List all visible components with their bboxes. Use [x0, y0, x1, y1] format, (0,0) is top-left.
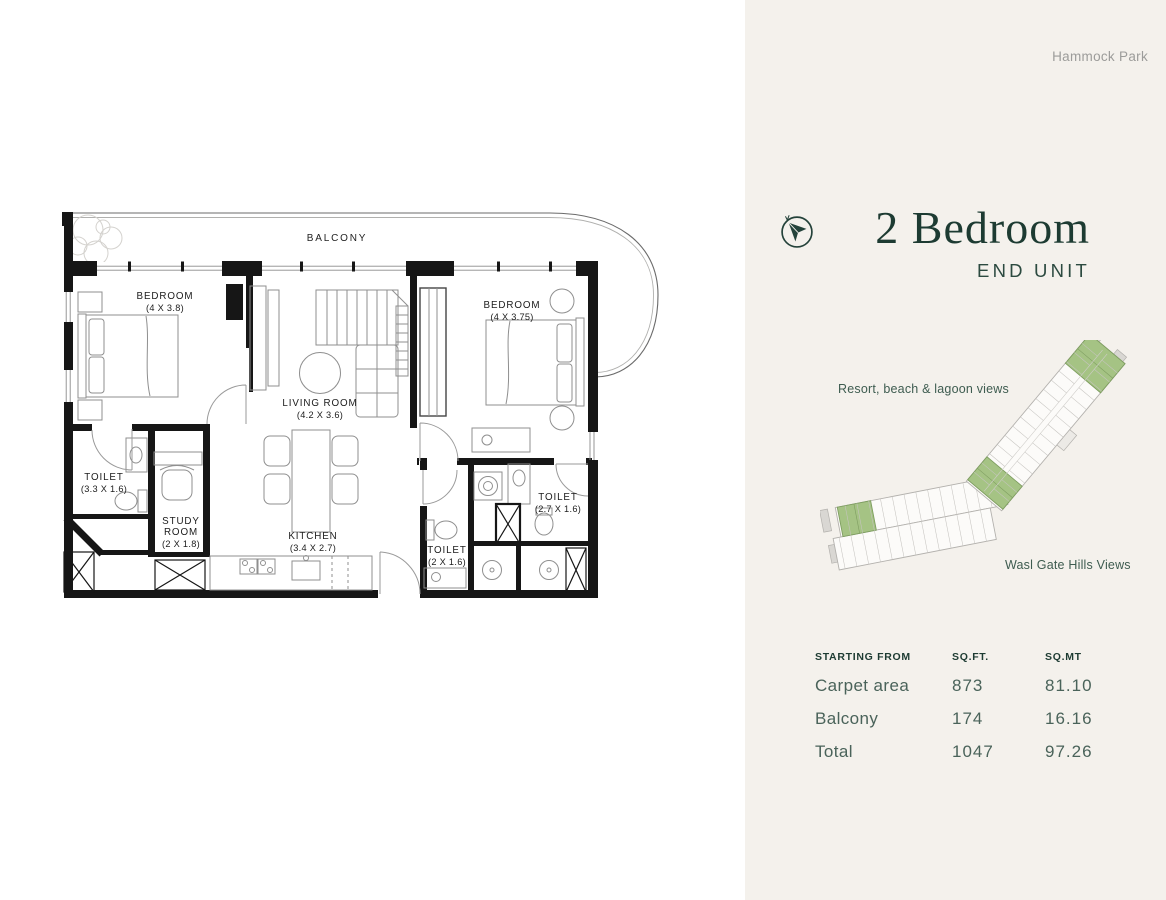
brand-text: Hammock Park: [1052, 49, 1148, 64]
svg-text:ROOM: ROOM: [164, 527, 198, 538]
svg-text:(4 X 3.75): (4 X 3.75): [490, 312, 533, 322]
svg-text:(2 X 1.6): (2 X 1.6): [428, 557, 466, 567]
room-label-toilet-3: TOILET: [427, 545, 467, 556]
row-sqft: 873: [952, 676, 1045, 696]
table-row: Balcony 174 16.16: [815, 709, 1115, 729]
room-label-toilet-2: TOILET: [538, 492, 578, 503]
svg-text:(2 X 1.8): (2 X 1.8): [162, 539, 200, 549]
header-sqft: SQ.FT.: [952, 651, 1045, 663]
row-label: Balcony: [815, 709, 952, 729]
room-label-toilet-1: TOILET: [84, 472, 124, 483]
compass-icon: [776, 210, 818, 252]
room-label-bedroom-2: BEDROOM: [484, 300, 541, 311]
room-label-study-room: STUDY: [162, 516, 200, 527]
plant-sketch-icon: [69, 215, 122, 265]
table-row: Carpet area 873 81.10: [815, 676, 1115, 696]
view-label-bottom: Wasl Gate Hills Views: [1005, 558, 1131, 572]
row-sqft: 1047: [952, 742, 1045, 762]
room-labels: BALCONY BEDROOM (4 X 3.8) BEDROOM (4 X 3…: [81, 233, 581, 567]
row-label: Total: [815, 742, 952, 762]
unit-subtitle: END UNIT: [875, 260, 1090, 282]
room-label-bedroom-1: BEDROOM: [137, 291, 194, 302]
room-label-kitchen: KITCHEN: [288, 531, 337, 542]
page-title: 2 Bedroom: [875, 204, 1090, 252]
info-panel: Hammock Park 2 Bedroom END UNIT Resort, …: [745, 0, 1166, 900]
row-sqmt: 97.26: [1045, 742, 1115, 762]
site-map: [820, 340, 1150, 590]
header-starting-from: STARTING FROM: [815, 651, 952, 663]
area-table-header: STARTING FROM SQ.FT. SQ.MT: [815, 651, 1115, 663]
row-sqft: 174: [952, 709, 1045, 729]
site-map-wing-upper: [963, 340, 1136, 517]
row-sqmt: 16.16: [1045, 709, 1115, 729]
table-row: Total 1047 97.26: [815, 742, 1115, 762]
header-sqmt: SQ.MT: [1045, 651, 1115, 663]
svg-text:(2.7 X 1.6): (2.7 X 1.6): [535, 504, 581, 514]
row-label: Carpet area: [815, 676, 952, 696]
svg-text:(3.3 X 1.6): (3.3 X 1.6): [81, 484, 127, 494]
svg-text:(4.2 X 3.6): (4.2 X 3.6): [297, 410, 343, 420]
svg-text:(4 X 3.8): (4 X 3.8): [146, 303, 184, 313]
svg-text:(3.4 X 2.7): (3.4 X 2.7): [290, 543, 336, 553]
floor-plan: BALCONY BEDROOM (4 X 3.8) BEDROOM (4 X 3…: [50, 195, 690, 625]
unit-title-block: 2 Bedroom END UNIT: [875, 204, 1090, 282]
room-label-balcony: BALCONY: [307, 233, 367, 244]
row-sqmt: 81.10: [1045, 676, 1115, 696]
area-table: STARTING FROM SQ.FT. SQ.MT Carpet area 8…: [815, 651, 1115, 762]
room-label-living-room: LIVING ROOM: [282, 398, 357, 409]
